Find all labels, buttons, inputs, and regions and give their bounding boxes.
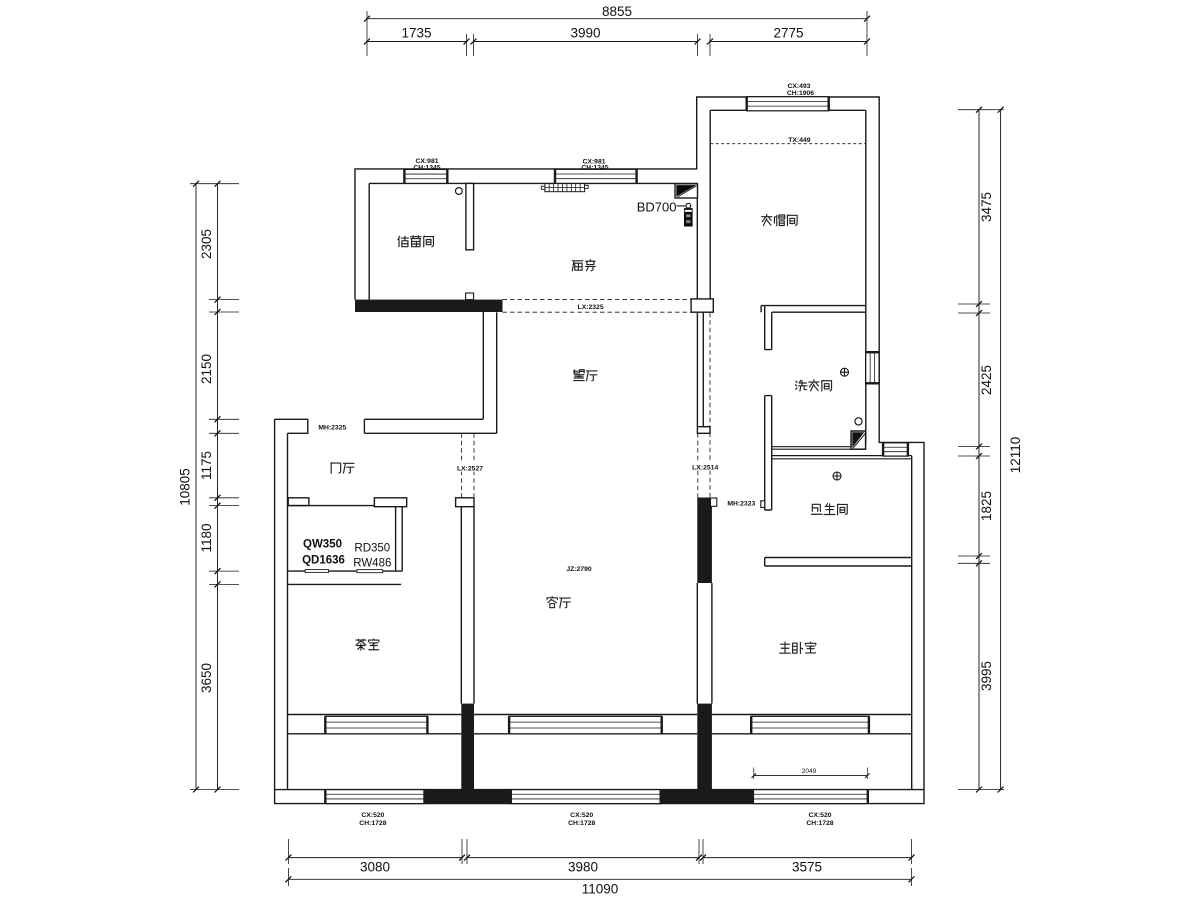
svg-text:3080: 3080: [360, 860, 390, 875]
svg-text:2049: 2049: [802, 768, 817, 775]
svg-text:CH:1906: CH:1906: [787, 90, 814, 97]
svg-text:CX:520: CX:520: [570, 812, 593, 819]
svg-text:12110: 12110: [1008, 437, 1023, 474]
svg-text:RW486: RW486: [353, 557, 391, 569]
svg-text:2150: 2150: [199, 354, 214, 384]
svg-text:JZ:2790: JZ:2790: [566, 566, 592, 573]
svg-text:TX:449: TX:449: [788, 137, 811, 144]
svg-text:3650: 3650: [199, 663, 214, 693]
svg-text:2775: 2775: [773, 25, 803, 40]
svg-text:3990: 3990: [570, 25, 600, 40]
svg-text:1735: 1735: [401, 25, 431, 40]
svg-text:MH:2325: MH:2325: [318, 424, 346, 431]
svg-text:2425: 2425: [979, 365, 994, 395]
svg-text:RD350: RD350: [354, 543, 390, 555]
svg-text:LX:2514: LX:2514: [692, 465, 718, 472]
svg-text:11090: 11090: [582, 882, 619, 897]
svg-text:1825: 1825: [979, 491, 994, 521]
svg-text:CX:520: CX:520: [361, 812, 384, 819]
svg-text:1180: 1180: [199, 523, 214, 552]
svg-text:3575: 3575: [792, 860, 822, 875]
svg-text:CH:1728: CH:1728: [806, 820, 833, 827]
svg-text:CX:520: CX:520: [808, 812, 831, 819]
svg-text:QW350: QW350: [303, 539, 342, 551]
svg-text:LX:2325: LX:2325: [578, 304, 604, 311]
svg-text:3995: 3995: [979, 661, 994, 691]
svg-text:1175: 1175: [199, 451, 214, 480]
svg-text:CH:1728: CH:1728: [568, 820, 595, 827]
svg-text:CH:1728: CH:1728: [359, 820, 386, 827]
svg-text:LX:2527: LX:2527: [457, 466, 483, 473]
svg-text:CH:1345: CH:1345: [413, 164, 440, 171]
svg-text:10805: 10805: [178, 468, 193, 506]
svg-text:3475: 3475: [979, 192, 994, 222]
svg-text:3980: 3980: [568, 860, 598, 875]
svg-text:QD1636: QD1636: [302, 555, 345, 567]
svg-text:2305: 2305: [199, 229, 214, 259]
svg-text:8855: 8855: [602, 4, 632, 19]
svg-text:BD700: BD700: [637, 199, 677, 214]
svg-text:CH:1345: CH:1345: [581, 164, 608, 171]
svg-text:MH:2323: MH:2323: [727, 500, 755, 507]
